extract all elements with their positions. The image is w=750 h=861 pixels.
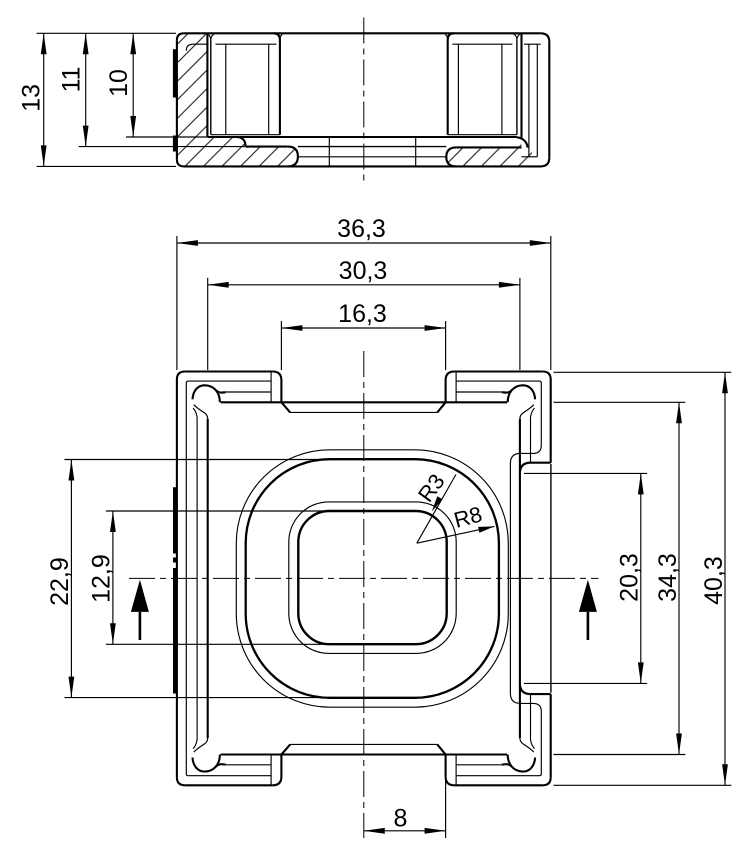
svg-text:12,9: 12,9 — [88, 554, 116, 603]
svg-text:20,3: 20,3 — [616, 553, 644, 602]
svg-text:13: 13 — [18, 84, 46, 112]
svg-text:16,3: 16,3 — [338, 300, 387, 328]
svg-text:11: 11 — [58, 66, 86, 92]
svg-text:34,3: 34,3 — [654, 553, 682, 602]
svg-text:36,3: 36,3 — [337, 215, 386, 243]
svg-text:22,9: 22,9 — [46, 557, 74, 606]
svg-text:40,3: 40,3 — [700, 556, 728, 605]
svg-text:8: 8 — [394, 804, 408, 832]
svg-text:10: 10 — [105, 69, 133, 97]
svg-text:30,3: 30,3 — [339, 257, 388, 285]
